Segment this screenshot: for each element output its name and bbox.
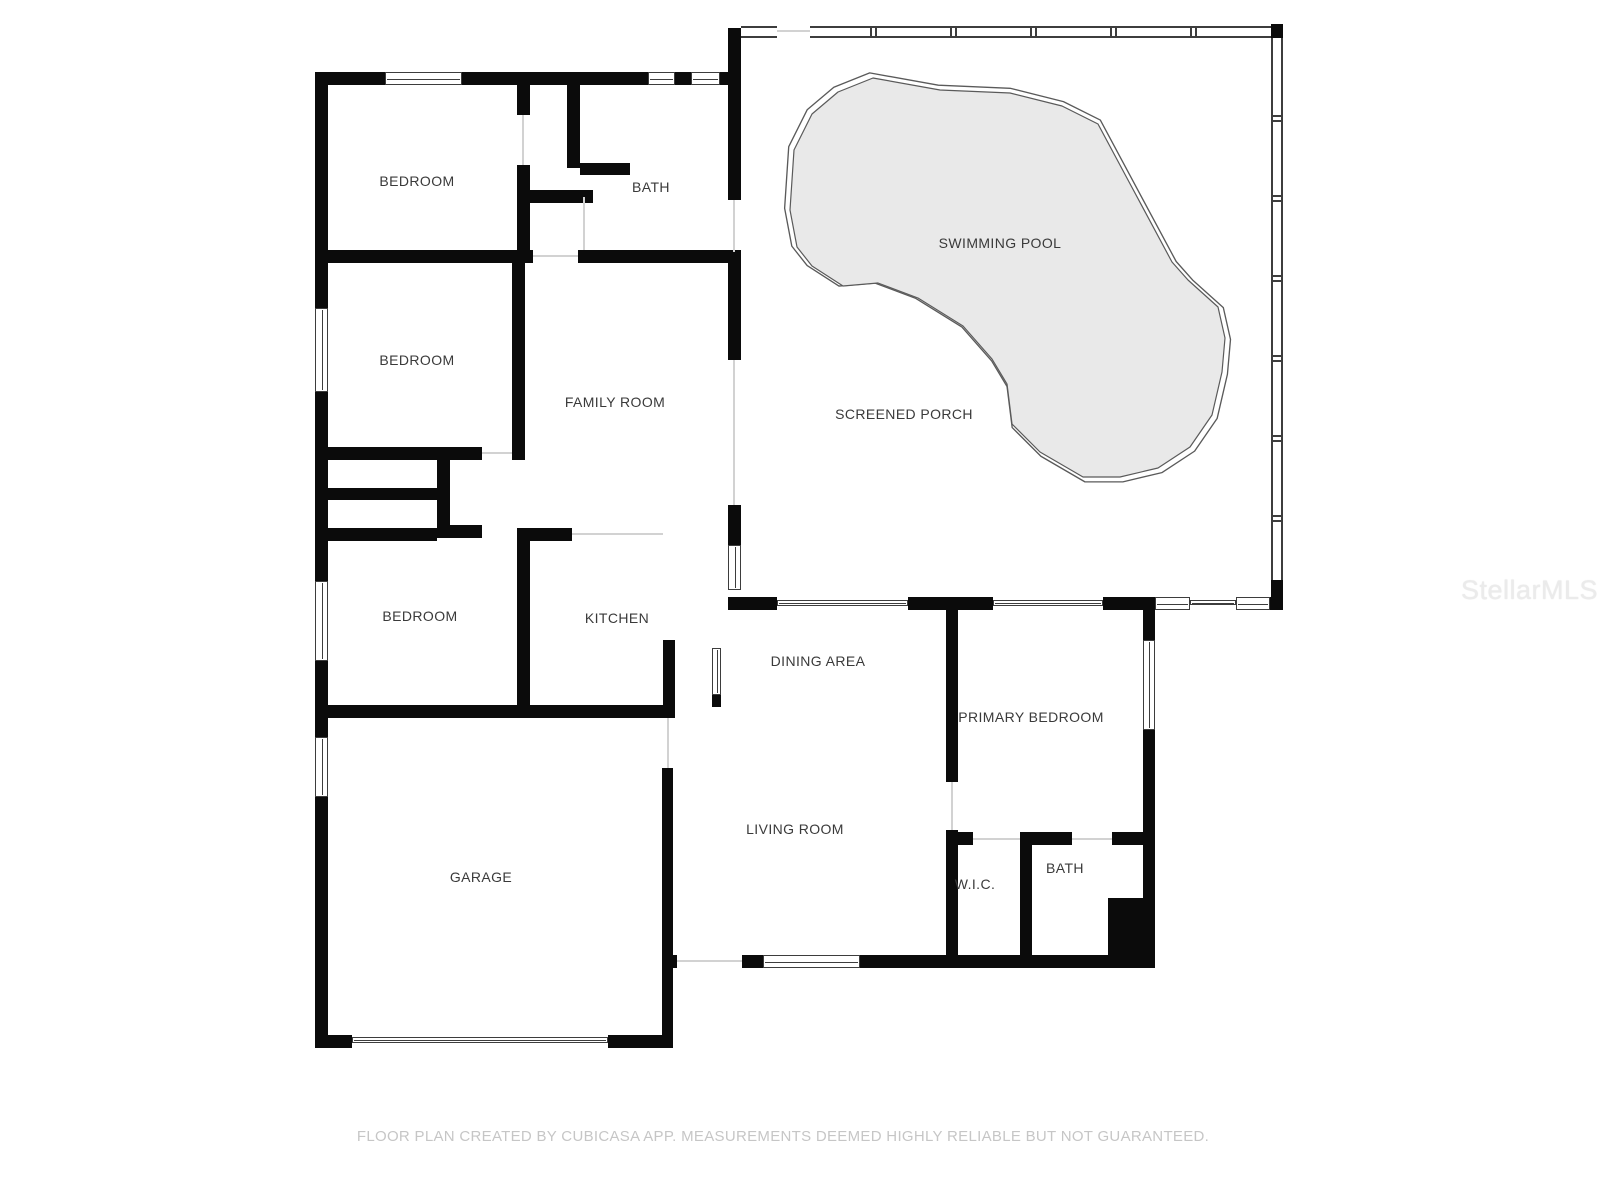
mullion	[875, 28, 877, 36]
door-threshold	[973, 838, 1020, 840]
window	[385, 72, 462, 85]
wall-segment	[517, 85, 530, 115]
mullion	[1273, 360, 1281, 362]
mullion	[1115, 28, 1117, 36]
room-label-family-room: FAMILY ROOM	[565, 394, 665, 410]
wall-segment	[1271, 580, 1283, 597]
wall-segment	[946, 830, 958, 968]
room-label-bedroom-3: BEDROOM	[382, 608, 457, 624]
mullion	[1273, 275, 1281, 277]
window	[1190, 600, 1236, 605]
window	[728, 545, 741, 590]
wall-segment	[663, 640, 675, 718]
window	[763, 955, 860, 968]
room-label-bedroom-1: BEDROOM	[379, 173, 454, 189]
mullion	[1273, 435, 1281, 437]
wall-segment	[1020, 832, 1032, 968]
window	[648, 72, 675, 85]
door-threshold	[951, 782, 953, 830]
window	[993, 600, 1103, 606]
wall-segment	[728, 252, 741, 360]
window	[1143, 640, 1155, 730]
wall-segment	[1103, 597, 1155, 610]
window	[315, 737, 328, 797]
floor-plan: BEDROOMBATHBEDROOMFAMILY ROOMSWIMMING PO…	[0, 0, 1600, 1200]
screen-wall	[810, 26, 1271, 38]
mullion	[1273, 120, 1281, 122]
wall-segment	[728, 505, 741, 545]
door-threshold	[522, 115, 524, 165]
wall-segment	[662, 768, 673, 1048]
door-threshold	[777, 30, 810, 32]
door-threshold	[533, 255, 578, 257]
wall-segment	[315, 72, 741, 85]
wall-segment	[315, 528, 437, 541]
wall-segment	[1108, 898, 1155, 958]
door-threshold	[667, 718, 669, 768]
mullion	[1273, 440, 1281, 442]
screen-wall	[741, 26, 777, 38]
door-threshold	[1072, 838, 1112, 840]
room-label-bath-2: BATH	[1046, 860, 1084, 876]
wall-segment	[1271, 24, 1283, 38]
room-label-swimming-pool: SWIMMING POOL	[939, 235, 1062, 251]
wall-segment	[580, 163, 630, 175]
mullion	[1195, 28, 1197, 36]
door-threshold	[583, 197, 585, 250]
wall-segment	[1112, 832, 1155, 845]
door-threshold	[733, 360, 735, 505]
mullion	[1273, 195, 1281, 197]
wall-segment	[437, 525, 482, 538]
wall-segment	[712, 695, 721, 707]
window	[315, 581, 328, 661]
door-threshold	[482, 452, 512, 454]
wall-segment	[946, 832, 973, 845]
wall-segment	[578, 250, 741, 263]
wall-segment	[315, 250, 533, 263]
wall-segment	[512, 262, 525, 460]
room-label-dining-area: DINING AREA	[771, 653, 866, 669]
window	[777, 600, 908, 606]
room-label-living-room: LIVING ROOM	[746, 821, 844, 837]
mullion	[955, 28, 957, 36]
mullion	[1273, 355, 1281, 357]
stellar-mls-watermark: StellarMLS	[1461, 575, 1598, 606]
door-threshold	[572, 533, 663, 535]
mullion	[1273, 115, 1281, 117]
mullion	[1190, 28, 1192, 36]
wall-segment	[662, 955, 677, 968]
wall-segment	[315, 488, 442, 500]
wall-segment	[742, 955, 763, 968]
wall-segment	[946, 598, 958, 782]
window	[712, 648, 721, 695]
wall-segment	[517, 528, 530, 718]
wall-segment	[517, 190, 593, 203]
mullion	[870, 28, 872, 36]
mullion	[950, 28, 952, 36]
room-label-screened-porch: SCREENED PORCH	[835, 406, 973, 422]
mullion	[1110, 28, 1112, 36]
wall-segment	[728, 597, 777, 610]
window	[1155, 597, 1190, 610]
room-label-primary-bedroom: PRIMARY BEDROOM	[958, 709, 1104, 725]
mullion	[1273, 515, 1281, 517]
room-label-kitchen: KITCHEN	[585, 610, 649, 626]
door-threshold	[677, 960, 742, 962]
mullion	[1273, 200, 1281, 202]
window	[1236, 597, 1270, 610]
room-label-garage: GARAGE	[450, 869, 512, 885]
window	[315, 308, 328, 392]
wall-segment	[517, 165, 530, 250]
wall-segment	[328, 447, 482, 460]
wall-segment	[567, 85, 580, 168]
mullion	[1273, 280, 1281, 282]
mullion	[1035, 28, 1037, 36]
wall-segment	[728, 28, 741, 200]
door-threshold	[733, 200, 735, 252]
mullion	[1273, 520, 1281, 522]
wall-segment	[315, 72, 328, 1048]
wall-segment	[315, 705, 673, 718]
mullion	[1030, 28, 1032, 36]
room-label-bedroom-2: BEDROOM	[379, 352, 454, 368]
wall-segment	[1270, 597, 1283, 610]
room-label-bath-1: BATH	[632, 179, 670, 195]
footer-disclaimer: FLOOR PLAN CREATED BY CUBICASA APP. MEAS…	[357, 1128, 1209, 1145]
window	[352, 1037, 608, 1043]
room-label-wic: W.I.C.	[955, 876, 996, 892]
window	[691, 72, 720, 85]
